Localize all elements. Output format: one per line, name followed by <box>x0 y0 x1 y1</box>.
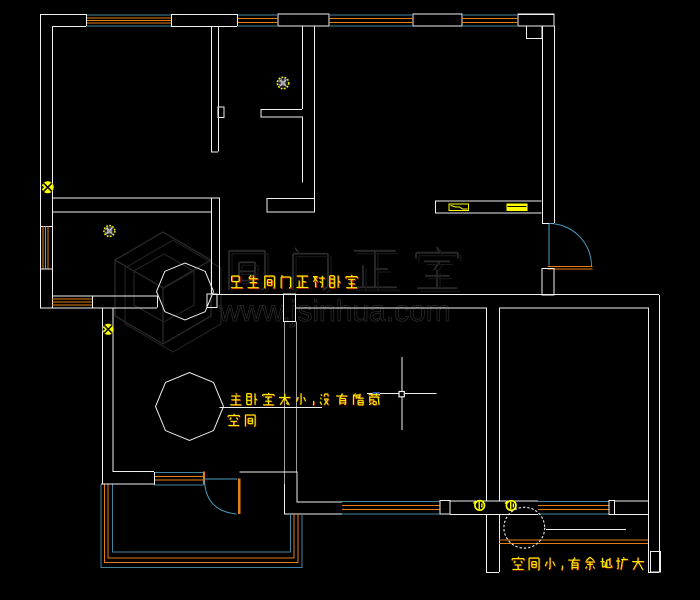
svg-text:www.jsinhua.com: www.jsinhua.com <box>218 295 451 328</box>
